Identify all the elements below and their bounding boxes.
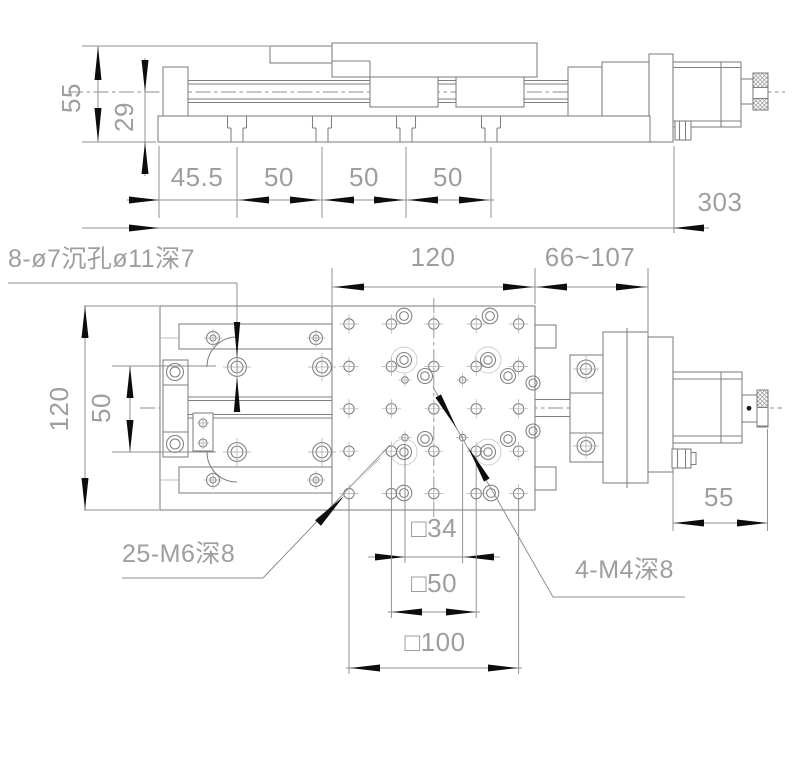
rail-upper (179, 324, 332, 349)
note-m4: 4-M4深8 (575, 556, 674, 584)
slider-block-1 (370, 77, 438, 107)
technical-drawing: 55 29 45.5 50 50 50 303 (0, 0, 800, 768)
end-slab-plan (648, 337, 673, 472)
drive-block-b (602, 62, 649, 116)
end-plate-side (649, 54, 673, 142)
dim-50-a: 50 (264, 162, 294, 192)
dim-55-plan: 55 (704, 482, 734, 512)
cad-drawing-page: 55 29 45.5 50 50 50 303 (0, 0, 800, 768)
dim-50-left: 50 (86, 393, 116, 423)
dim-50-b: 50 (349, 162, 379, 192)
dim-303: 303 (698, 187, 743, 217)
side-view: 55 29 45.5 50 50 50 303 (56, 43, 785, 233)
table-side (332, 43, 537, 77)
hex-screw-side (675, 121, 691, 140)
drive-assembly-plan (535, 325, 768, 490)
dim-120-left: 120 (44, 387, 74, 432)
micrometer-body-plan (673, 372, 742, 443)
spindle-dot (747, 406, 752, 411)
drive-block-plan (603, 332, 648, 483)
slider-block-2 (456, 77, 524, 107)
dim-travel: 66~107 (545, 242, 635, 272)
knob-band (754, 88, 768, 99)
left-bearing-block (163, 67, 188, 116)
dim-120-top: 120 (411, 242, 456, 272)
drive-block-a (568, 67, 602, 117)
cover-plate-side (270, 46, 332, 63)
clamp-tab-lower (535, 467, 556, 490)
dim-height-29: 29 (109, 102, 139, 132)
dim-sq34: □34 (411, 513, 457, 543)
base-plate-side (158, 116, 650, 142)
note-m6: 25-M6深8 (122, 540, 235, 568)
note-counterbore: 8-ø7沉孔ø11深7 (8, 245, 195, 273)
dim-sq50: □50 (411, 568, 457, 598)
dim-50-c: 50 (433, 162, 463, 192)
clamp-tab-upper (535, 325, 556, 348)
dim-height-55: 55 (56, 83, 86, 113)
micrometer-body-side (673, 62, 741, 127)
dim-45-5: 45.5 (171, 162, 224, 192)
hex-screw-plan (672, 449, 691, 468)
dim-sq100: □100 (404, 627, 465, 657)
spindle-side (741, 79, 753, 104)
plan-view: 120 66~107 120 50 55 □34 □50 □100 (8, 242, 782, 674)
